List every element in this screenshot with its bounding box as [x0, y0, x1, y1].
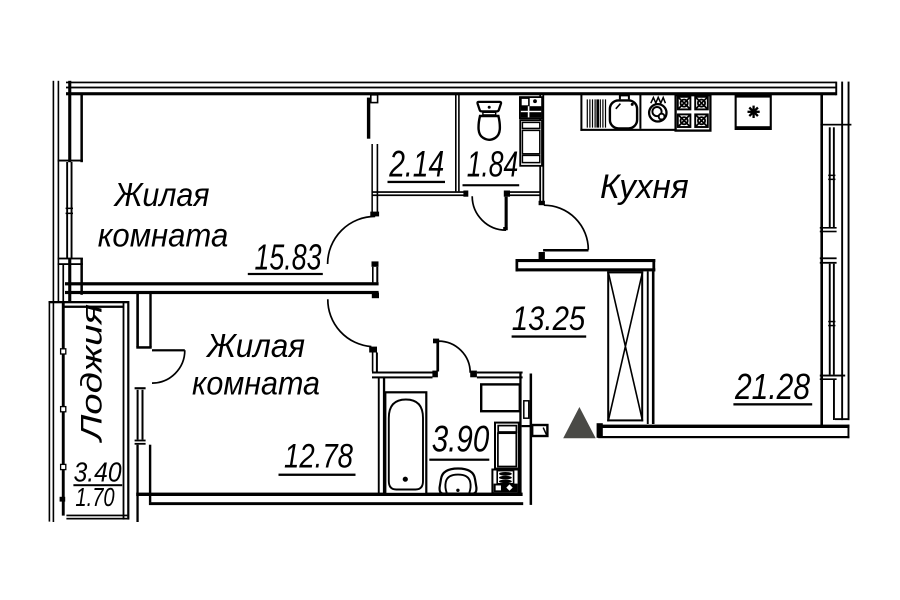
svg-text:Лоджия: Лоджия [76, 304, 109, 444]
svg-text:15.83: 15.83 [255, 237, 322, 278]
svg-text:21.28: 21.28 [734, 366, 810, 407]
svg-text:1.70: 1.70 [75, 482, 115, 512]
svg-text:2.14: 2.14 [388, 144, 444, 185]
svg-text:Жилая: Жилая [205, 327, 305, 364]
svg-text:Кухня: Кухня [600, 168, 689, 206]
svg-text:Жилая: Жилая [113, 176, 210, 213]
svg-text:13.25: 13.25 [512, 300, 586, 338]
svg-text:комната: комната [98, 216, 229, 253]
svg-text:1.84: 1.84 [467, 144, 519, 185]
svg-text:комната: комната [192, 365, 320, 402]
svg-text:12.78: 12.78 [284, 438, 353, 476]
svg-text:3.90: 3.90 [432, 419, 490, 460]
